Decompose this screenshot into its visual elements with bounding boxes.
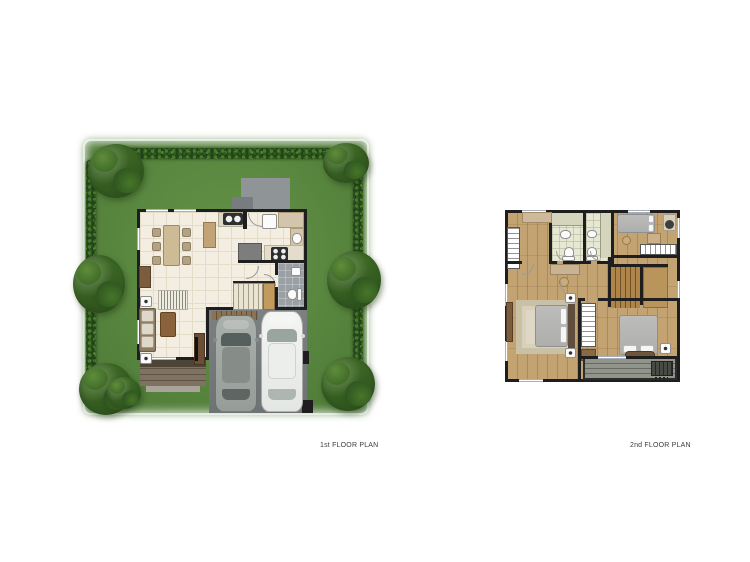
wall-living-carport	[206, 307, 209, 360]
wall-bedroom3-top	[598, 298, 680, 301]
second-floor-label: 2nd FLOOR PLAN	[630, 442, 691, 449]
coffee-table	[160, 312, 176, 337]
staircase-treads	[611, 267, 640, 308]
bedroom2-chair	[665, 220, 674, 229]
dining-table	[163, 225, 180, 266]
car-roof	[222, 347, 250, 383]
window	[505, 341, 508, 361]
first-floor-plan	[0, 0, 430, 562]
pillow	[648, 215, 654, 223]
wall-hall-stub	[505, 261, 522, 264]
bedroom2-side-table	[622, 236, 631, 245]
bath-2-basin	[587, 230, 597, 238]
condenser-vents	[655, 377, 668, 380]
kitchen-basin	[292, 233, 302, 244]
nightstand	[565, 293, 576, 303]
floor-plan-sheet: 1st FLOOR PLAN 2nd FLOOR PLAN	[0, 0, 750, 562]
terrace-step	[146, 386, 200, 392]
car-hood	[223, 320, 249, 329]
master-tv-console	[506, 302, 513, 342]
pillow	[648, 224, 654, 232]
kitchen-sink	[223, 213, 243, 225]
bush-bottom-left-small	[107, 377, 141, 409]
staircase-treads	[233, 283, 263, 310]
bush-right-middle	[327, 251, 381, 309]
hall-dresser	[522, 212, 552, 223]
car-roof	[268, 343, 296, 379]
master-headboard	[568, 304, 575, 348]
vanity-counter	[550, 264, 580, 275]
shower-2	[600, 213, 611, 258]
terrace-deck	[140, 367, 206, 386]
sofa-cushion	[141, 310, 154, 322]
gate-post	[302, 400, 313, 413]
stair-landing	[643, 267, 668, 308]
car-windshield	[267, 329, 297, 342]
wall-bedroom2-bottom	[614, 255, 680, 258]
staircase-landing	[263, 283, 275, 310]
toilet-bowl	[287, 289, 297, 300]
sofa-cushion	[141, 336, 154, 348]
shower-1	[552, 213, 583, 226]
living-rug	[158, 290, 188, 310]
dining-sideboard	[139, 266, 151, 288]
window	[628, 210, 650, 213]
wall-kitchen-stub	[243, 209, 247, 229]
wall-bath-divider	[583, 213, 586, 261]
car-rear-window	[268, 389, 296, 400]
air-condenser-unit	[651, 361, 673, 376]
wc-basin	[291, 267, 301, 276]
bush-top-right	[323, 143, 369, 183]
car-windshield	[221, 333, 251, 346]
dining-chair	[182, 228, 191, 237]
bath-1-basin	[560, 230, 571, 239]
kitchen-counter-corner	[278, 212, 304, 228]
car-hood	[269, 316, 295, 325]
window	[137, 228, 140, 250]
dining-chair	[152, 228, 161, 237]
dining-chair	[152, 242, 161, 251]
car-mirror	[259, 334, 263, 338]
pantry-cabinet	[203, 222, 216, 248]
bedroom3-dresser	[660, 343, 671, 354]
first-floor-label: 1st FLOOR PLAN	[320, 442, 378, 449]
car-silver	[215, 315, 257, 412]
refrigerator	[262, 214, 277, 229]
pillow	[560, 308, 567, 325]
car-mirror	[255, 338, 259, 342]
sofa-cushion	[141, 323, 154, 335]
window	[677, 281, 680, 299]
car-white	[261, 311, 303, 412]
car-mirror	[213, 338, 217, 342]
car-mirror	[301, 334, 305, 338]
walk-in-closet	[581, 303, 596, 347]
window	[174, 209, 196, 212]
bedroom2-wardrobe	[640, 244, 677, 255]
second-floor-plan	[430, 0, 750, 562]
dining-chair	[182, 256, 191, 265]
window	[519, 379, 543, 382]
nightstand	[565, 348, 576, 358]
window	[677, 218, 680, 238]
bedroom2-dresser	[647, 233, 661, 244]
tv-screen	[195, 337, 198, 361]
pillow	[560, 326, 567, 343]
side-table	[140, 296, 152, 307]
toilet-tank	[297, 288, 302, 301]
bush-bottom-right	[321, 357, 375, 411]
tree-top-left	[88, 144, 144, 198]
bush-left-middle	[73, 255, 125, 313]
dining-chair	[152, 256, 161, 265]
dining-chair	[182, 242, 191, 251]
window	[146, 209, 168, 212]
side-table	[140, 353, 152, 364]
four-burner-cooktop	[271, 247, 288, 261]
car-rear-window	[222, 389, 250, 400]
